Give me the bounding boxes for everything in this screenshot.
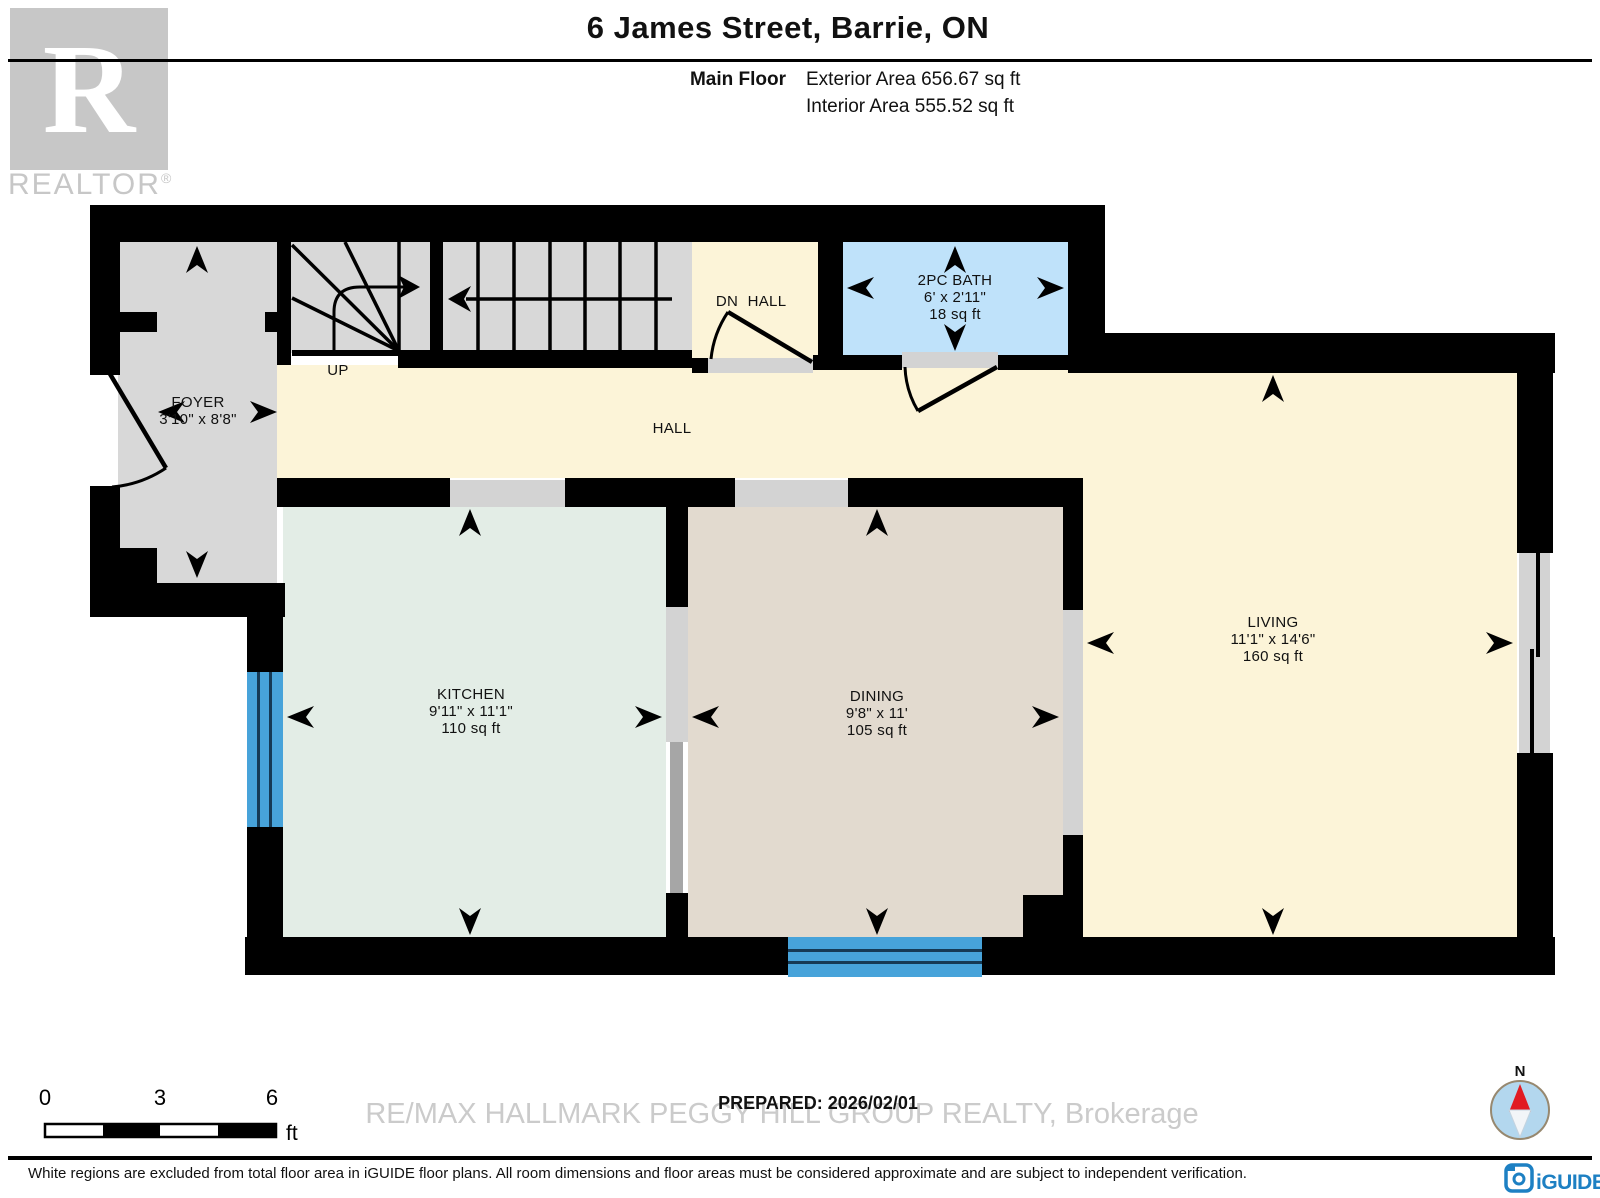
scale-bar: 0 3 6 ft <box>39 1085 298 1145</box>
iguide-logo: iGUIDE <box>1506 1165 1600 1194</box>
prepared-date: PREPARED: 2026/02/01 <box>608 1093 1028 1114</box>
up-stairs-floor <box>290 240 430 353</box>
room-label-hall: HALL <box>612 420 732 437</box>
disclaimer-text: White regions are excluded from total fl… <box>28 1165 1348 1182</box>
iguide-wordmark: iGUIDE <box>1536 1171 1600 1194</box>
room-label-kitchen: KITCHEN 9'11" x 11'1" 110 sq ft <box>371 686 571 737</box>
room-label-upper-hall: HALL <box>737 293 797 310</box>
floor-plan-page: R REALTOR® 6 James Street, Barrie, ON Ma… <box>0 0 1600 1198</box>
floor-plan-svg: 0 3 6 ft iGUIDE <box>0 0 1600 1198</box>
scale-tick-6: 6 <box>266 1085 278 1110</box>
compass-north-label: N <box>1504 1063 1536 1080</box>
pocket-door-slab <box>670 742 683 893</box>
room-label-foyer: FOYER 3'10" x 8'8" <box>98 394 298 428</box>
kitchen-window <box>247 672 283 827</box>
room-label-living: LIVING 11'1" x 14'6" 160 sq ft <box>1173 614 1373 665</box>
footer-divider <box>8 1156 1592 1160</box>
scale-tick-0: 0 <box>39 1085 51 1110</box>
room-label-bath: 2PC BATH 6' x 2'11" 18 sq ft <box>855 272 1055 323</box>
header-divider <box>8 59 1592 62</box>
scale-tick-3: 3 <box>154 1085 166 1110</box>
room-label-up: UP <box>303 362 373 379</box>
dining-window <box>788 937 982 977</box>
compass <box>1491 1081 1549 1139</box>
room-label-dining: DINING 9'8" x 11' 105 sq ft <box>777 688 977 739</box>
